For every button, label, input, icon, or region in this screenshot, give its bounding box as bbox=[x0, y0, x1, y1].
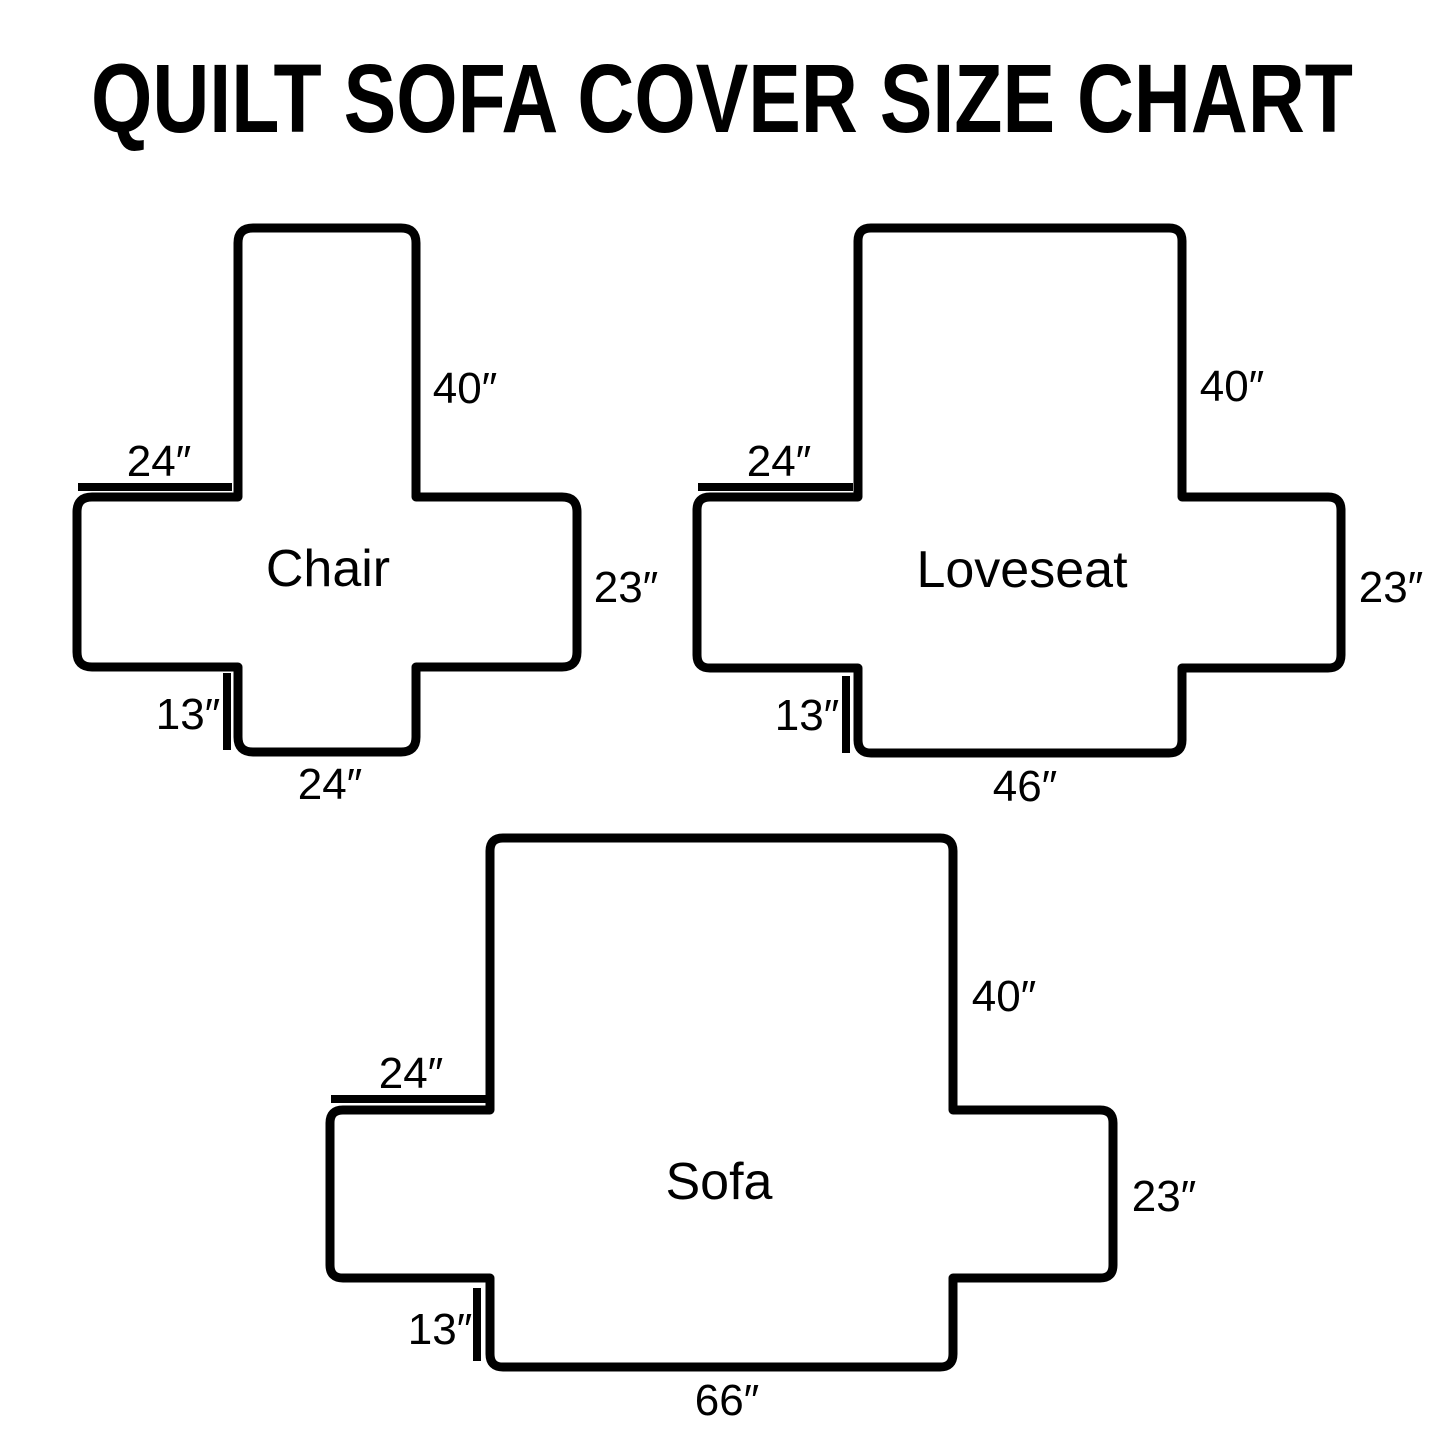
size-chart-canvas: QUILT SOFA COVER SIZE CHART Chair 40″ 24… bbox=[0, 0, 1445, 1435]
sofa-bottom-width-label: 66″ bbox=[695, 1376, 760, 1425]
sofa-front-height-label: 13″ bbox=[408, 1305, 473, 1354]
chair-front-height-label: 13″ bbox=[156, 690, 221, 739]
loveseat-diagram: Loveseat 40″ 24″ 23″ 13″ 46″ bbox=[697, 228, 1423, 811]
chair-side-height-label: 23″ bbox=[594, 563, 659, 612]
sofa-back-height-label: 40″ bbox=[972, 972, 1037, 1021]
sofa-name-label: Sofa bbox=[666, 1153, 773, 1211]
chair-diagram: Chair 40″ 24″ 23″ 13″ 24″ bbox=[77, 228, 658, 809]
sofa-side-height-label: 23″ bbox=[1132, 1172, 1197, 1221]
sofa-diagram: Sofa 40″ 24″ 23″ 13″ 66″ bbox=[330, 838, 1196, 1425]
chair-arm-width-label: 24″ bbox=[127, 437, 192, 486]
loveseat-front-height-label: 13″ bbox=[775, 691, 840, 740]
chair-bottom-width-label: 24″ bbox=[298, 760, 363, 809]
sofa-arm-width-label: 24″ bbox=[379, 1049, 444, 1098]
loveseat-bottom-width-label: 46″ bbox=[993, 762, 1058, 811]
loveseat-name-label: Loveseat bbox=[916, 541, 1128, 599]
size-chart-page: QUILT SOFA COVER SIZE CHART Chair 40″ 24… bbox=[0, 0, 1445, 1435]
loveseat-side-height-label: 23″ bbox=[1359, 563, 1424, 612]
chair-name-label: Chair bbox=[266, 540, 390, 598]
loveseat-back-height-label: 40″ bbox=[1200, 362, 1265, 411]
page-title: QUILT SOFA COVER SIZE CHART bbox=[91, 44, 1353, 153]
chair-back-height-label: 40″ bbox=[433, 364, 498, 413]
loveseat-arm-width-label: 24″ bbox=[747, 437, 812, 486]
